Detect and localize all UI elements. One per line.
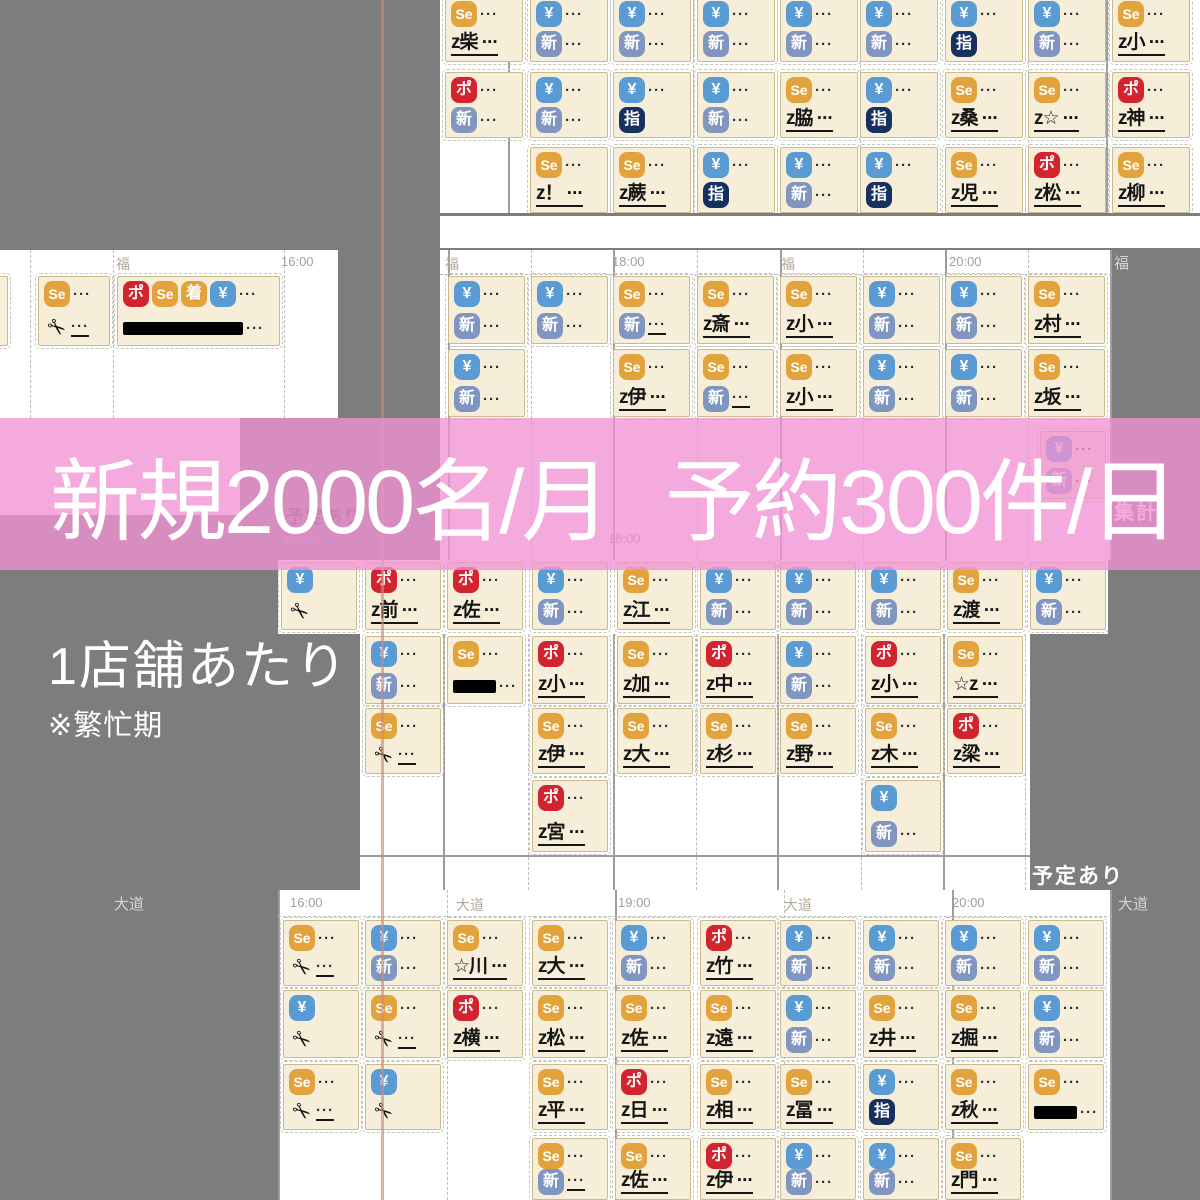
appointment-cell[interactable]: Se···✂··· (283, 1064, 359, 1130)
appointment-cell[interactable]: ¥···新··· (532, 562, 608, 630)
appointment-cell[interactable]: Se···z大 ··· (532, 920, 608, 986)
ellipsis: ··· (732, 390, 750, 409)
ellipsis: ··· (565, 7, 583, 22)
ellipsis: ··· (732, 113, 750, 128)
ellipsis: ··· (650, 931, 668, 946)
appointment-cell[interactable]: ポ···z小 ··· (532, 636, 608, 704)
appointment-cell[interactable]: Se···z秋 ··· (945, 1064, 1021, 1130)
promo-banner: 新規2000名/月 予約300件/日 (0, 418, 1200, 570)
new-customer-icon: 新 (536, 107, 562, 133)
appointment-cell[interactable]: ¥···新··· (863, 1138, 939, 1200)
cell-line-2: z脇 ··· (786, 107, 852, 133)
customer-name: z江 ··· (623, 600, 670, 624)
paid-booking-icon: ¥ (536, 1, 562, 27)
ellipsis: ··· (815, 1149, 833, 1164)
appointment-cell[interactable]: Se···z野 ··· (780, 708, 856, 774)
paid-booking-icon: ¥ (951, 1, 977, 27)
appointment-cell[interactable]: Se···z遠 ··· (700, 990, 776, 1058)
grid-line-vertical (693, 0, 694, 213)
nominated-icon: 指 (866, 107, 892, 133)
cell-line-1: ¥··· (619, 1, 685, 27)
new-customer-icon: 新 (1034, 955, 1060, 981)
appointment-cell[interactable]: Se···z村 ··· (1028, 276, 1105, 344)
set-menu-icon: Se (786, 77, 812, 103)
appointment-cell[interactable]: Se···z大 ··· (617, 708, 693, 774)
paid-booking-icon: ¥ (1034, 995, 1060, 1021)
paid-booking-icon: ¥ (786, 1143, 812, 1169)
appointment-cell[interactable]: Se···z児 ··· (945, 147, 1023, 213)
ellipsis: ··· (483, 392, 501, 407)
status-label: 大道 (1118, 893, 1148, 914)
ellipsis: ··· (900, 647, 918, 662)
ellipsis: ··· (398, 747, 416, 766)
cell-line-2: z相 ··· (706, 1099, 770, 1125)
cell-line-1: ¥··· (703, 1, 769, 27)
ellipsis: ··· (400, 573, 418, 588)
cell-line-2: 新··· (619, 31, 685, 57)
appointment-cell[interactable]: Se···z相 ··· (700, 1064, 776, 1130)
customer-name: z秋 ··· (951, 1100, 998, 1124)
point-icon: ポ (123, 281, 149, 307)
cell-line-1: ¥··· (786, 641, 850, 667)
arrived-icon: 着 (181, 281, 207, 307)
customer-name: z小 ··· (871, 674, 918, 698)
ellipsis: ··· (815, 7, 833, 22)
new-customer-icon: 新 (619, 31, 645, 57)
cell-line-2: 新··· (869, 955, 933, 981)
appointment-cell[interactable]: ¥···新··· (700, 562, 776, 630)
appointment-cell[interactable]: Se···z小 ··· (780, 349, 857, 417)
appointment-cell[interactable]: Se···✂··· (365, 990, 441, 1058)
cell-line-2: z伊 ··· (619, 386, 684, 412)
ellipsis: ··· (652, 719, 670, 734)
set-menu-icon: Se (1118, 1, 1144, 27)
appointment-cell[interactable]: ¥···新··· (531, 276, 608, 344)
appointment-cell[interactable]: ¥···新··· (530, 72, 608, 138)
appointment-cell[interactable]: ¥···指 (697, 147, 775, 213)
appointment-cell[interactable]: ¥···新··· (613, 0, 691, 62)
ellipsis: ··· (648, 158, 666, 173)
appointment-cell[interactable]: ポ···z日 ··· (615, 1064, 691, 1130)
nominated-icon: 指 (951, 31, 977, 57)
set-menu-icon: Se (706, 995, 732, 1021)
paid-booking-icon: ¥ (371, 925, 397, 951)
cell-line-2: z門 ··· (951, 1169, 1015, 1195)
cell-line-1: ¥··· (1034, 1, 1100, 27)
set-menu-icon: Se (1118, 152, 1144, 178)
ellipsis: ··· (652, 647, 670, 662)
ellipsis: ··· (1147, 7, 1165, 22)
appointment-cell[interactable]: Se···z渡 ··· (947, 562, 1023, 630)
appointment-cell[interactable]: ¥···新··· (365, 920, 441, 986)
appointment-cell[interactable]: Se······ (1028, 1064, 1104, 1130)
cell-line-2: 新··· (451, 107, 517, 133)
appointment-cell[interactable]: Se···z加 ··· (617, 636, 693, 704)
cell-line-2: z梁 ··· (953, 743, 1017, 769)
appointment-cell[interactable]: ¥···新··· (448, 349, 525, 417)
cell-line-1: ¥··· (703, 77, 769, 103)
appointment-cell[interactable]: ¥新··· (865, 780, 941, 852)
appointment-cell[interactable]: Se···z佐 ··· (615, 990, 691, 1058)
appointment-cell[interactable]: Se···✂··· (365, 708, 441, 774)
appointment-cell[interactable]: ポ···z伊 ··· (700, 1138, 776, 1200)
appointment-cell[interactable]: Se···z坂 ··· (1028, 349, 1105, 417)
ellipsis: ··· (815, 37, 833, 52)
ellipsis: ··· (1065, 605, 1083, 620)
customer-name: z相 ··· (706, 1100, 753, 1124)
appointment-cell[interactable]: Se···新··· (613, 276, 690, 344)
appointment-cell[interactable]: ポ···z松 ··· (1028, 147, 1106, 213)
appointment-cell[interactable]: ¥···新··· (945, 920, 1021, 986)
appointment-cell[interactable]: Se···z！ ··· (530, 147, 608, 213)
paid-booking-icon: ¥ (786, 567, 812, 593)
appointment-cell[interactable]: ¥···指 (860, 72, 938, 138)
appointment-cell[interactable]: ¥✂ (283, 990, 359, 1058)
new-customer-icon: 新 (786, 182, 812, 208)
cell-line-1: ポ··· (538, 785, 602, 811)
set-menu-icon: Se (371, 995, 397, 1021)
customer-name: z☆ ··· (1034, 108, 1079, 132)
appointment-cell[interactable]: ¥···新··· (697, 72, 775, 138)
top-schedule-grid: Se···z柴 ···¥···新···¥···新···¥···新···¥···新… (440, 0, 1200, 213)
appointment-cell[interactable]: ¥···指 (860, 147, 938, 213)
cell-line-2: z佐 ··· (453, 599, 517, 625)
appointment-cell[interactable]: Se···z井 ··· (863, 990, 939, 1058)
appointment-cell[interactable]: ¥···新··· (780, 920, 856, 986)
appointment-cell[interactable]: ¥···新··· (863, 276, 940, 344)
point-icon: ポ (706, 925, 732, 951)
cell-line-1: Se··· (703, 281, 768, 307)
appointment-cell[interactable]: ¥···指 (945, 0, 1023, 62)
appointment-cell[interactable]: Se···z冨 ··· (780, 1064, 856, 1130)
cell-line-2: 新··· (1034, 31, 1100, 57)
lower-mid-schedule-grid: ¥···新···Se······ポ···z小 ···Se···z加 ···ポ··… (360, 634, 1030, 890)
appointment-cell[interactable]: ポSe着¥······ (117, 276, 280, 346)
appointment-cell[interactable]: ¥···指 (863, 1064, 939, 1130)
cell-line-2: 新··· (786, 955, 850, 981)
cell-line-2: 指 (869, 1099, 933, 1125)
new-customer-icon: 新 (536, 31, 562, 57)
customer-name: z中 ··· (706, 674, 753, 698)
new-customer-icon: 新 (871, 599, 897, 625)
paid-booking-icon: ¥ (866, 77, 892, 103)
cell-line-1: ¥··· (869, 1069, 933, 1095)
lower-mid-first-row-grid: ¥✂ポ···z前 ···ポ···z佐 ···¥···新···Se···z江 ··… (278, 560, 1108, 634)
appointment-cell[interactable]: Se···z柳 ··· (1112, 147, 1190, 213)
cell-line-1: ポ··· (1118, 77, 1184, 103)
appointment-cell[interactable]: ¥···新··· (780, 147, 858, 213)
ellipsis: ··· (735, 719, 753, 734)
grid-line-vertical (113, 250, 114, 418)
paid-booking-icon: ¥ (706, 567, 732, 593)
cell-line-1: ¥··· (537, 281, 602, 307)
appointment-cell[interactable]: ポ···z小 ··· (865, 636, 941, 704)
nominated-icon: 指 (703, 182, 729, 208)
appointment-cell[interactable]: ¥···新··· (530, 0, 608, 62)
cell-line-2: z松 ··· (1034, 182, 1100, 208)
appointment-cell[interactable]: Se···新··· (697, 349, 774, 417)
appointment-cell[interactable]: Se···z斎 ··· (697, 276, 774, 344)
new-customer-icon: 新 (786, 955, 812, 981)
appointment-cell[interactable]: ¥···新··· (865, 562, 941, 630)
cell-line-2: z冨 ··· (786, 1099, 850, 1125)
set-menu-icon: Se (786, 354, 812, 380)
appointment-cell[interactable]: ポ···z竹 ··· (700, 920, 776, 986)
appointment-cell[interactable]: Se···z☆ ··· (1028, 72, 1106, 138)
ellipsis: ··· (400, 679, 418, 694)
appointment-cell[interactable]: Se···☆川 ··· (447, 920, 523, 986)
appointment-cell[interactable]: ¥···新··· (697, 0, 775, 62)
ellipsis: ··· (1063, 1033, 1081, 1048)
set-menu-icon: Se (703, 354, 729, 380)
appointment-cell[interactable]: ¥···新··· (945, 349, 1022, 417)
cell-line-2: z松 ··· (538, 1027, 602, 1053)
cell-line-2: z小 ··· (786, 386, 851, 412)
customer-name: z伊 ··· (619, 387, 666, 411)
cell-line-2: 新··· (869, 1169, 933, 1195)
customer-name: z蕨 ··· (619, 183, 666, 207)
point-icon: ポ (1034, 152, 1060, 178)
cell-line-1: ポ··· (451, 77, 517, 103)
cell-line-2: 新··· (706, 599, 770, 625)
appointment-cell[interactable]: ポ···z梁 ··· (947, 708, 1023, 774)
set-menu-icon: Se (619, 281, 645, 307)
customer-name: z小 ··· (786, 314, 833, 338)
set-menu-icon: Se (289, 925, 315, 951)
cell-line-1: ¥··· (786, 1143, 850, 1169)
cell-line-1: Se··· (786, 713, 850, 739)
grid-line-vertical (1106, 0, 1108, 213)
appointment-cell[interactable]: ¥···新··· (1030, 562, 1106, 630)
appointment-cell[interactable]: Se···z伊 ··· (613, 349, 690, 417)
mid-left-schedule-grid: 福16:00Se···✂···ポSe着¥······ (0, 250, 338, 418)
appointment-cell[interactable]: ポ···z前 ··· (365, 562, 441, 630)
cell-line-2: z小 ··· (786, 313, 851, 339)
caption-line2: ※繁忙期 (48, 702, 349, 744)
appointment-cell[interactable]: ¥···新··· (365, 636, 441, 704)
new-customer-icon: 新 (951, 955, 977, 981)
ellipsis: ··· (815, 1075, 833, 1090)
appointment-cell[interactable]: Se···z門 ··· (945, 1138, 1021, 1200)
appointment-cell[interactable]: ¥···新··· (780, 636, 856, 704)
cell-line-2: z日 ··· (621, 1099, 685, 1125)
appointment-cell[interactable]: Se···z松 ··· (532, 990, 608, 1058)
grid-line-horizontal (440, 274, 1112, 275)
appointment-cell[interactable]: Se···z佐 ··· (615, 1138, 691, 1200)
cell-line-1: ポ··· (621, 1069, 685, 1095)
appointment-cell[interactable]: Se···z平 ··· (532, 1064, 608, 1130)
customer-name: z村 ··· (1034, 314, 1081, 338)
ellipsis: ··· (565, 37, 583, 52)
set-menu-icon: Se (706, 713, 732, 739)
appointment-cell[interactable]: ¥···指 (613, 72, 691, 138)
appointment-cell[interactable]: ¥···新··· (945, 276, 1022, 344)
new-customer-icon: 新 (706, 599, 732, 625)
grid-line-vertical (696, 634, 697, 890)
ellipsis: ··· (898, 1075, 916, 1090)
appointment-cell[interactable]: ¥···新··· (863, 920, 939, 986)
appointment-cell[interactable]: Se···z脇 ··· (780, 72, 858, 138)
ellipsis: ··· (815, 360, 833, 375)
ellipsis: ··· (980, 287, 998, 302)
ellipsis: ··· (732, 158, 750, 173)
point-icon: ポ (371, 567, 397, 593)
cell-line-1: Se··· (951, 152, 1017, 178)
paid-booking-icon: ¥ (454, 354, 480, 380)
set-menu-icon: Se (538, 995, 564, 1021)
appointment-cell[interactable]: Se···z江 ··· (617, 562, 693, 630)
appointment-cell[interactable]: ¥···新··· (780, 562, 856, 630)
bottom-schedule-grid: 16:00大道19:00大道20:00Se···✂···¥···新···Se··… (278, 890, 1112, 1200)
appointment-cell[interactable]: ポ···z横 ··· (447, 990, 523, 1058)
point-icon: ポ (706, 641, 732, 667)
ellipsis: ··· (735, 1149, 753, 1164)
time-label: 20:00 (949, 254, 982, 269)
ellipsis: ··· (815, 188, 833, 203)
cell-line-1: Se··· (706, 1069, 770, 1095)
cell-line-2: 新··· (703, 31, 769, 57)
appointment-cell[interactable]: ¥···新··· (1028, 0, 1106, 62)
cell-line-1: ¥··· (786, 152, 852, 178)
customer-name: z！ ··· (536, 183, 583, 207)
new-customer-icon: 新 (703, 386, 729, 412)
ellipsis: ··· (316, 1103, 334, 1122)
scissors-icon: ✂ (283, 1094, 318, 1129)
ellipsis: ··· (567, 647, 585, 662)
ellipsis: ··· (239, 287, 257, 302)
appointment-cell[interactable] (0, 276, 8, 346)
point-icon: ポ (453, 995, 479, 1021)
ellipsis: ··· (567, 719, 585, 734)
point-icon: ポ (706, 1143, 732, 1169)
appointment-cell[interactable]: Se···✂··· (38, 276, 110, 346)
customer-name: z柳 ··· (1118, 183, 1165, 207)
cell-line-1: Se··· (951, 1069, 1015, 1095)
cell-line-1: Se··· (703, 354, 768, 380)
ellipsis: ··· (895, 83, 913, 98)
cell-line-1: ポ··· (953, 713, 1017, 739)
cell-line-1: Se··· (786, 354, 851, 380)
appointment-cell[interactable]: ¥···新··· (1028, 990, 1104, 1058)
paid-booking-icon: ¥ (786, 641, 812, 667)
staff-column-label: 福 (445, 254, 459, 274)
ellipsis: ··· (398, 1031, 416, 1050)
cell-line-2: z野 ··· (786, 743, 850, 769)
appointment-cell[interactable]: ¥✂ (281, 562, 357, 630)
ellipsis: ··· (482, 1001, 500, 1016)
cell-line-1: Se··· (951, 995, 1015, 1021)
appointment-cell[interactable]: Se···z伊 ··· (532, 708, 608, 774)
appointment-cell[interactable]: ポ···z宮 ··· (532, 780, 608, 852)
appointment-cell[interactable]: ¥···新··· (860, 0, 938, 62)
set-menu-icon: Se (44, 281, 70, 307)
set-menu-icon: Se (951, 1143, 977, 1169)
customer-name: z前 ··· (371, 600, 418, 624)
ellipsis: ··· (980, 1149, 998, 1164)
ellipsis: ··· (1147, 83, 1165, 98)
paid-booking-icon: ¥ (866, 152, 892, 178)
customer-name: z日 ··· (621, 1100, 668, 1124)
set-menu-icon: Se (451, 1, 477, 27)
appointment-cell[interactable]: ¥✂ (365, 1064, 441, 1130)
paid-booking-icon: ¥ (703, 152, 729, 178)
new-customer-icon: 新 (869, 313, 895, 339)
appointment-cell[interactable]: Se···z杉 ··· (700, 708, 776, 774)
new-customer-icon: 新 (951, 386, 977, 412)
ellipsis: ··· (71, 319, 89, 338)
cell-line-2: ☆川 ··· (453, 955, 517, 981)
appointment-cell[interactable]: Se···z柴 ··· (445, 0, 523, 62)
appointment-cell[interactable]: ¥···新··· (863, 349, 940, 417)
ellipsis: ··· (980, 360, 998, 375)
appointment-cell[interactable]: ポ···z佐 ··· (447, 562, 523, 630)
customer-name: z大 ··· (538, 956, 585, 980)
ellipsis: ··· (898, 1175, 916, 1190)
appointment-cell[interactable]: Se···z掘 ··· (945, 990, 1021, 1058)
ellipsis: ··· (735, 1075, 753, 1090)
cell-line-2: z大 ··· (538, 955, 602, 981)
nominated-icon: 指 (619, 107, 645, 133)
appointment-cell[interactable]: ¥···新··· (780, 1138, 856, 1200)
appointment-cell[interactable]: Se···新··· (532, 1138, 608, 1200)
new-customer-icon: 新 (619, 313, 645, 339)
ellipsis: ··· (735, 647, 753, 662)
cell-line-2: 指 (866, 182, 932, 208)
point-icon: ポ (621, 1069, 647, 1095)
cell-line-2: z宮 ··· (538, 821, 602, 847)
new-customer-icon: 新 (538, 1169, 564, 1195)
appointment-cell[interactable]: Se···z蕨 ··· (613, 147, 691, 213)
customer-name: z木 ··· (871, 744, 918, 768)
customer-name: z伊 ··· (706, 1170, 753, 1194)
appointment-cell[interactable]: ポ···z神 ··· (1112, 72, 1190, 138)
appointment-cell[interactable]: ¥···新··· (615, 920, 691, 986)
appointment-cell[interactable]: Se···z桑 ··· (945, 72, 1023, 138)
appointment-cell[interactable]: Se······ (447, 636, 523, 704)
point-icon: ポ (453, 567, 479, 593)
cell-line-2: z佐 ··· (621, 1027, 685, 1053)
cell-line-2: z中 ··· (706, 673, 770, 699)
appointment-cell[interactable]: ¥···新··· (448, 276, 525, 344)
appointment-cell[interactable]: ¥···新··· (780, 990, 856, 1058)
appointment-cell[interactable]: Se···z木 ··· (865, 708, 941, 774)
cell-line-1: ¥··· (1034, 925, 1098, 951)
appointment-cell[interactable]: ポ···z中 ··· (700, 636, 776, 704)
ellipsis: ··· (565, 158, 583, 173)
ellipsis: ··· (1063, 961, 1081, 976)
cell-line-1: ¥··· (786, 567, 850, 593)
customer-name: z坂 ··· (1034, 387, 1081, 411)
point-icon: ポ (451, 77, 477, 103)
cell-line-1: Se··· (621, 995, 685, 1021)
new-customer-icon: 新 (869, 386, 895, 412)
appointment-cell[interactable]: ¥···新··· (780, 0, 858, 62)
paid-booking-icon: ¥ (454, 281, 480, 307)
appointment-cell[interactable]: Se···z小 ··· (1112, 0, 1190, 62)
cell-line-2: z秋 ··· (951, 1099, 1015, 1125)
cell-line-1: ¥··· (866, 1, 932, 27)
new-customer-icon: 新 (454, 313, 480, 339)
set-menu-icon: Se (869, 995, 895, 1021)
customer-name: z小 ··· (1118, 32, 1165, 56)
appointment-cell[interactable]: Se···✂··· (283, 920, 359, 986)
cell-line-1: Se··· (951, 77, 1017, 103)
appointment-cell[interactable]: Se···☆z ··· (947, 636, 1023, 704)
appointment-cell[interactable]: Se···z小 ··· (780, 276, 857, 344)
appointment-cell[interactable]: ポ···新··· (445, 72, 523, 138)
appointment-cell[interactable]: ¥···新··· (1028, 920, 1104, 986)
current-time-line (381, 0, 384, 1200)
